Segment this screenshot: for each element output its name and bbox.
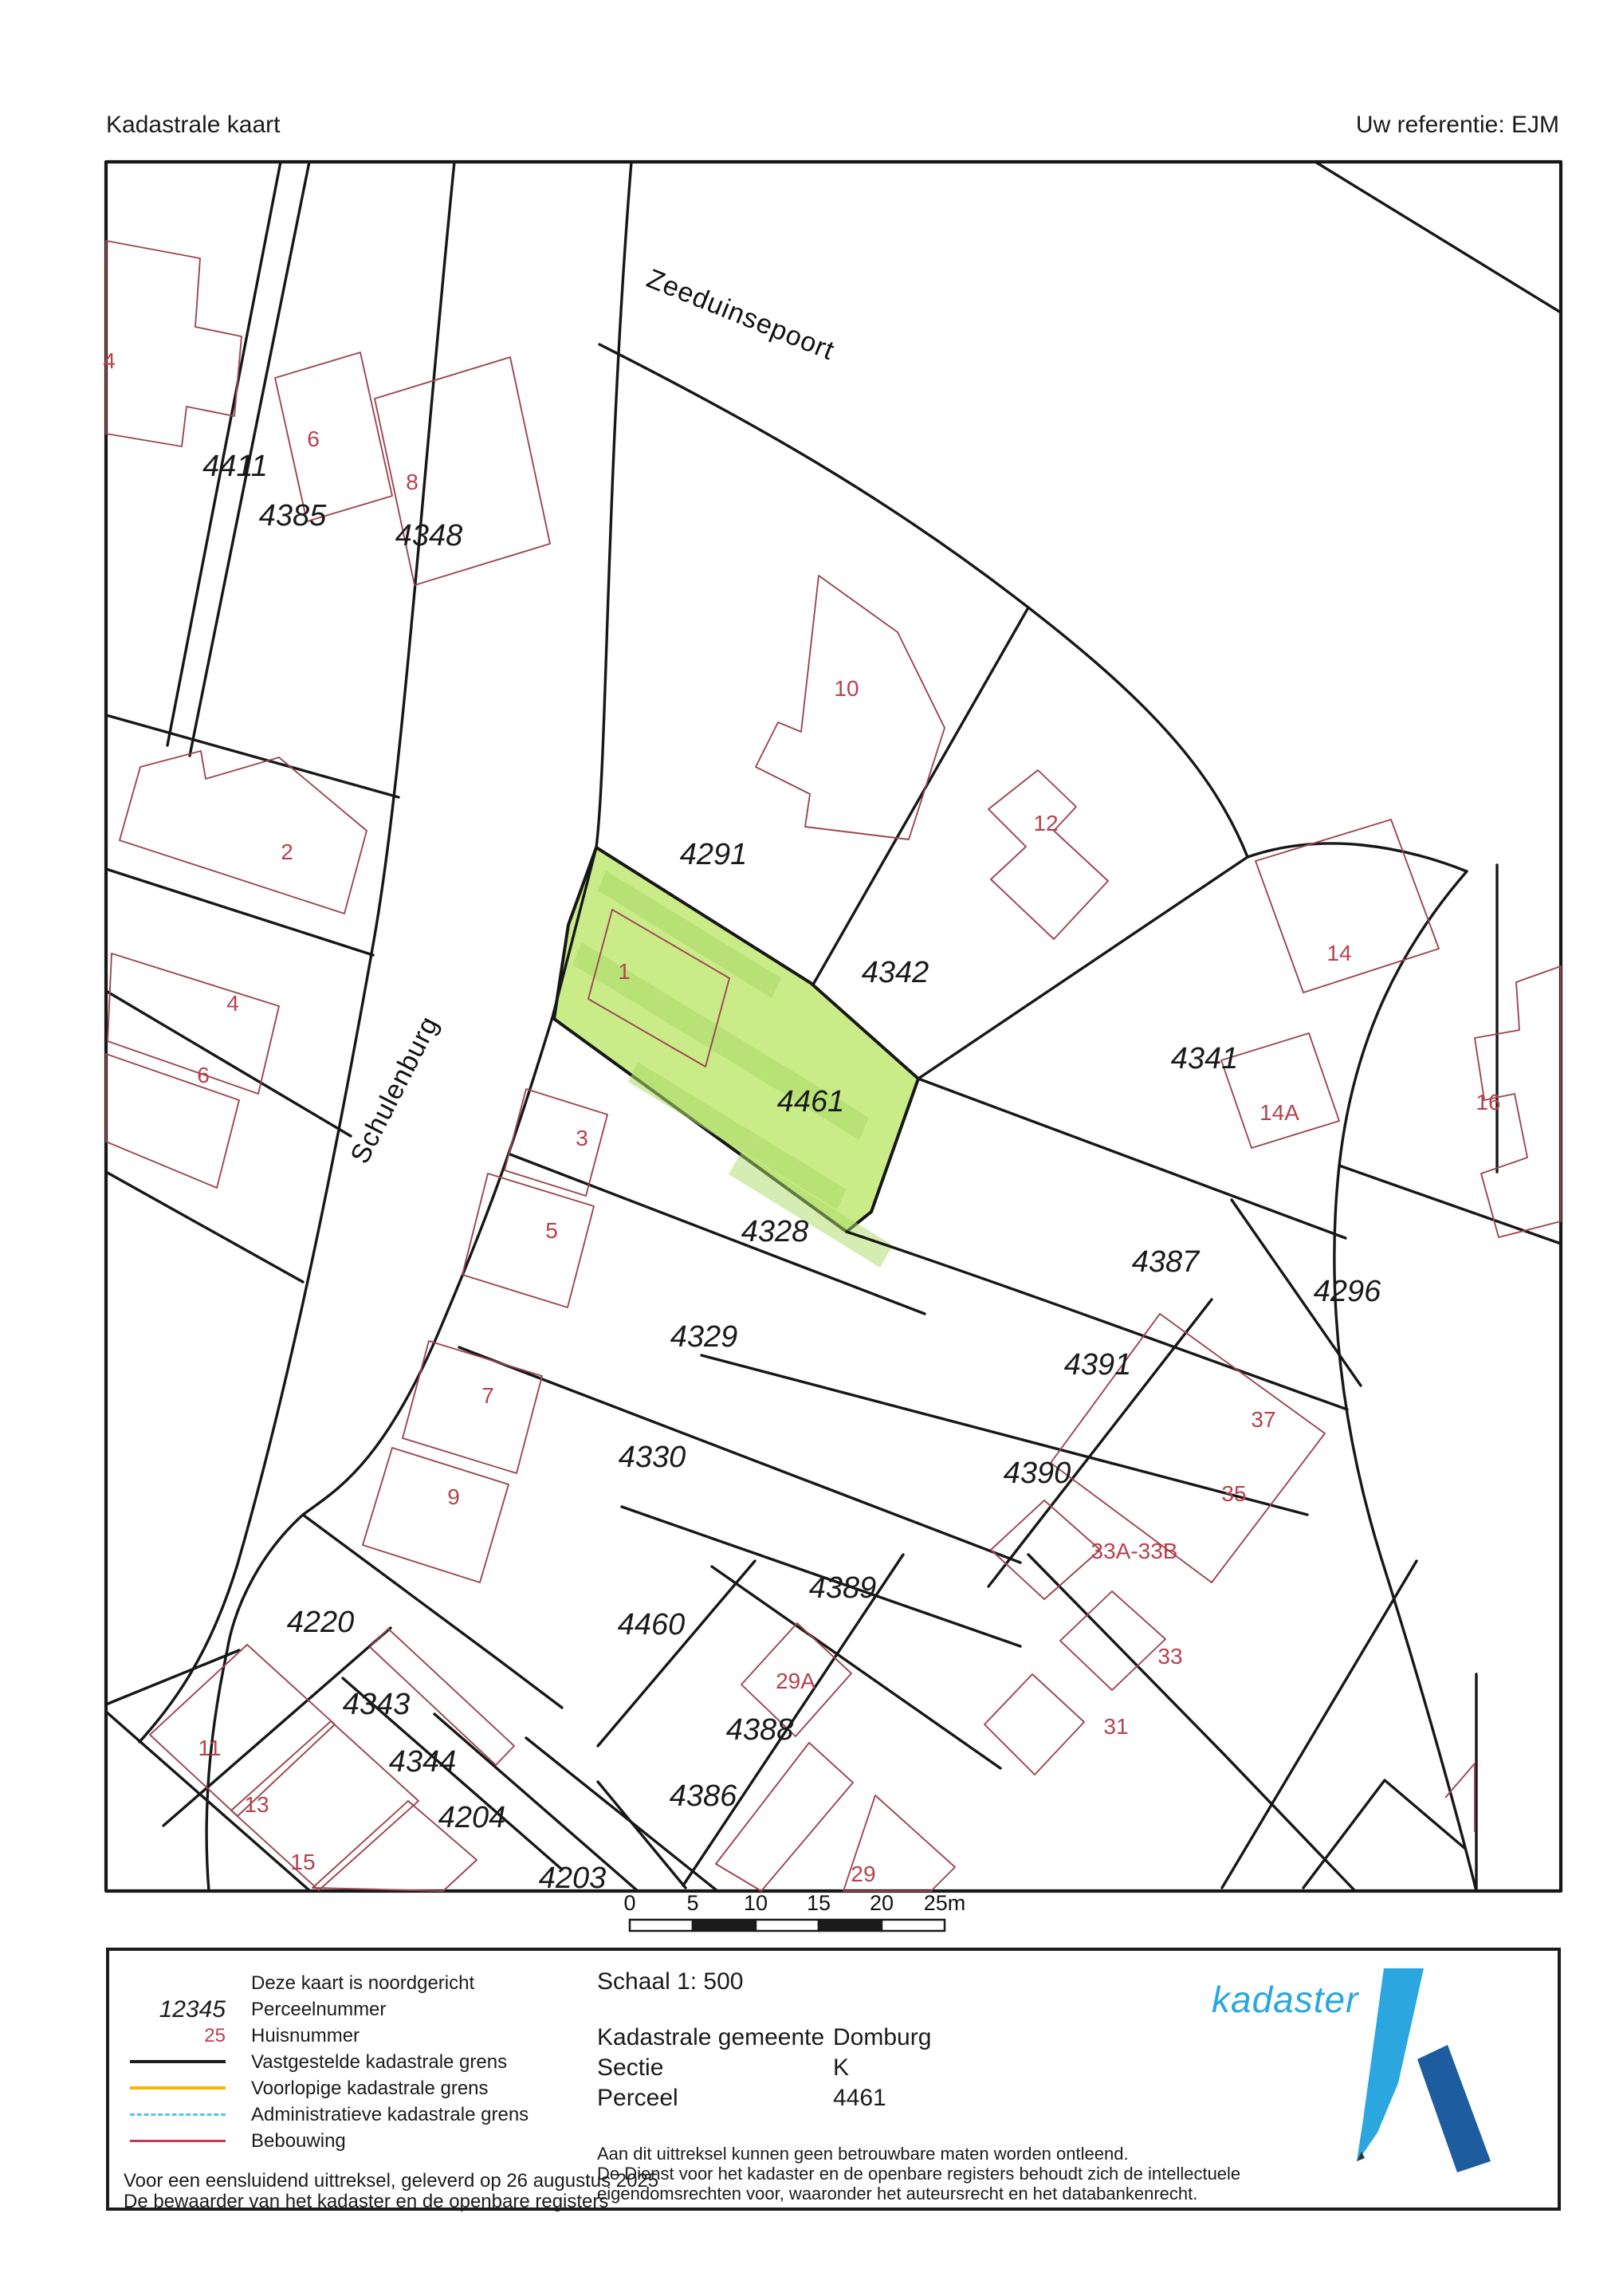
parcel-label-4388: 4388	[726, 1713, 794, 1747]
legend-label: Huisnummer	[251, 2025, 360, 2047]
kadaster-logo: kadaster	[1212, 1964, 1531, 2196]
legend-item: Bebouwing	[124, 2128, 529, 2154]
parcel-label-4220: 4220	[287, 1606, 355, 1639]
house-number-16: 16	[1476, 1090, 1500, 1115]
house-number-35: 35	[1221, 1481, 1246, 1506]
field-row: Kadastrale gemeenteDomburg	[597, 2024, 931, 2054]
legend-item: Administratieve kadastrale grens	[124, 2101, 529, 2128]
scale-tick-0: 0	[623, 1891, 635, 1915]
scale-tick-10: 10	[744, 1891, 768, 1915]
legend: Deze kaart is noordgericht12345Perceelnu…	[124, 1970, 529, 2154]
scale-bar-segment	[819, 1920, 882, 1931]
parcel-label-4460: 4460	[618, 1608, 686, 1641]
scale-bar-segment	[693, 1920, 756, 1931]
scale-bar-segment	[756, 1920, 819, 1931]
house-number-33A-33B: 33A-33B	[1091, 1539, 1178, 1563]
legend-label: Perceelnummer	[251, 1999, 386, 2021]
house-number-4: 4	[226, 991, 239, 1016]
house-number-2: 2	[281, 839, 293, 864]
house-number-11: 11	[198, 1736, 221, 1760]
parcel-label-4389: 4389	[809, 1571, 877, 1605]
legend-label: Deze kaart is noordgericht	[251, 1972, 474, 1995]
parcel-label-4330: 4330	[619, 1441, 686, 1474]
parcel-label-4461: 4461	[777, 1085, 845, 1119]
legend-sample-black	[124, 2055, 226, 2070]
kadaster-logo-icon	[1322, 1964, 1521, 2196]
parcel-label-4291: 4291	[680, 838, 748, 871]
legend-sample-red	[124, 2134, 226, 2149]
cadastral-map-page: Kadastrale kaart Uw referentie: EJM	[0, 0, 1623, 2296]
scale-tick-20: 20	[870, 1891, 894, 1915]
house-number-12: 12	[1033, 811, 1058, 835]
disclaimer: Aan dit uittreksel kunnen geen betrouwba…	[597, 2144, 1240, 2204]
legend-sample-parcel: 12345	[124, 1996, 226, 2023]
house-number-4: 4	[103, 348, 116, 373]
house-number-29: 29	[851, 1862, 875, 1886]
field-value: 4461	[833, 2085, 886, 2115]
parcel-label-4348: 4348	[395, 519, 463, 552]
disclaimer-line: Aan dit uittreksel kunnen geen betrouwba…	[597, 2144, 1240, 2164]
parcel-label-4386: 4386	[670, 1779, 737, 1813]
scale-bar: 0510152025m	[623, 1891, 965, 1931]
field-row: SectieK	[597, 2054, 931, 2085]
parcel-label-4342: 4342	[862, 956, 929, 989]
legend-label: Administratieve kadastrale grens	[251, 2104, 529, 2126]
parcel-label-4385: 4385	[259, 499, 327, 533]
legend-item: 12345Perceelnummer	[124, 1996, 529, 2023]
parcel-label-4387: 4387	[1132, 1245, 1201, 1279]
field-value: K	[833, 2054, 849, 2085]
parcel-label-4329: 4329	[670, 1320, 738, 1354]
house-number-13: 13	[244, 1792, 269, 1817]
parcel-label-4391: 4391	[1064, 1348, 1132, 1382]
legend-item: Vastgestelde kadastrale grens	[124, 2049, 529, 2075]
house-number-14A: 14A	[1259, 1100, 1299, 1125]
scale-tick-15: 15	[807, 1891, 831, 1915]
legend-item: Voorlopige kadastrale grens	[124, 2075, 529, 2101]
house-number-15: 15	[290, 1850, 315, 1874]
parcel-label-4341: 4341	[1171, 1042, 1239, 1075]
field-value: Domburg	[833, 2024, 931, 2054]
house-number-5: 5	[545, 1218, 558, 1243]
disclaimer-line: De Dienst voor het kadaster en de openba…	[597, 2164, 1240, 2184]
house-number-14: 14	[1326, 941, 1351, 965]
field-label: Sectie	[597, 2054, 833, 2085]
legend-label: Voorlopige kadastrale grens	[251, 2078, 489, 2100]
street-name-schulenburg: Schulenburg	[344, 1011, 445, 1168]
field-label: Kadastrale gemeente	[597, 2024, 833, 2054]
delivery-line-2: De bewaarder van het kadaster en de open…	[124, 2192, 658, 2212]
scale-tick-25m: 25m	[924, 1891, 966, 1915]
house-number-31: 31	[1103, 1714, 1128, 1739]
scale-bar-segment	[630, 1920, 693, 1931]
info-footer: Deze kaart is noordgericht12345Perceelnu…	[106, 1948, 1561, 2211]
field-label: Perceel	[597, 2085, 833, 2115]
parcel-label-4390: 4390	[1004, 1457, 1071, 1490]
house-number-37: 37	[1251, 1407, 1275, 1432]
house-number-9: 9	[447, 1484, 460, 1509]
house-number-7: 7	[481, 1383, 494, 1408]
highlighted-parcel-4461	[554, 847, 918, 1268]
house-number-8: 8	[406, 470, 419, 494]
scale-tick-5: 5	[686, 1891, 698, 1915]
scale-text: Schaal 1: 500	[597, 1968, 743, 1995]
house-number-29A: 29A	[776, 1669, 815, 1693]
house-number-6: 6	[307, 427, 320, 451]
parcel-label-4328: 4328	[741, 1215, 809, 1248]
street-name-zeeduinsepoort: Zeeduinsepoort	[643, 263, 839, 366]
delivery-line-1: Voor een eensluidend uittreksel, gelever…	[124, 2171, 658, 2192]
field-row: Perceel4461	[597, 2085, 931, 2115]
legend-label: Vastgestelde kadastrale grens	[251, 2051, 507, 2074]
house-number-1: 1	[618, 959, 631, 984]
house-number-10: 10	[834, 676, 859, 701]
parcel-fields: Kadastrale gemeenteDomburgSectieKPerceel…	[597, 2024, 931, 2115]
house-number-33: 33	[1157, 1644, 1182, 1669]
legend-sample-yellow	[124, 2082, 226, 2096]
legend-sample-cyan	[124, 2108, 226, 2122]
house-number-6: 6	[197, 1063, 210, 1087]
parcel-label-4411: 4411	[202, 450, 268, 483]
parcel-label-4343: 4343	[343, 1688, 411, 1721]
delivery-note: Voor een eensluidend uittreksel, gelever…	[124, 2171, 658, 2212]
disclaimer-line: eigendomsrechten voor, waaronder het aut…	[597, 2184, 1240, 2204]
legend-label: Bebouwing	[251, 2130, 346, 2152]
parcel-label-4344: 4344	[389, 1745, 457, 1779]
legend-item: Deze kaart is noordgericht	[124, 1970, 529, 1996]
scale-bar-segment	[882, 1920, 945, 1931]
house-number-3: 3	[576, 1126, 588, 1150]
parcel-label-4203: 4203	[539, 1862, 607, 1895]
legend-item: 25Huisnummer	[124, 2023, 529, 2049]
parcel-label-4204: 4204	[438, 1801, 506, 1834]
legend-sample-huis: 25	[124, 2025, 226, 2047]
parcel-label-4296: 4296	[1314, 1275, 1381, 1308]
